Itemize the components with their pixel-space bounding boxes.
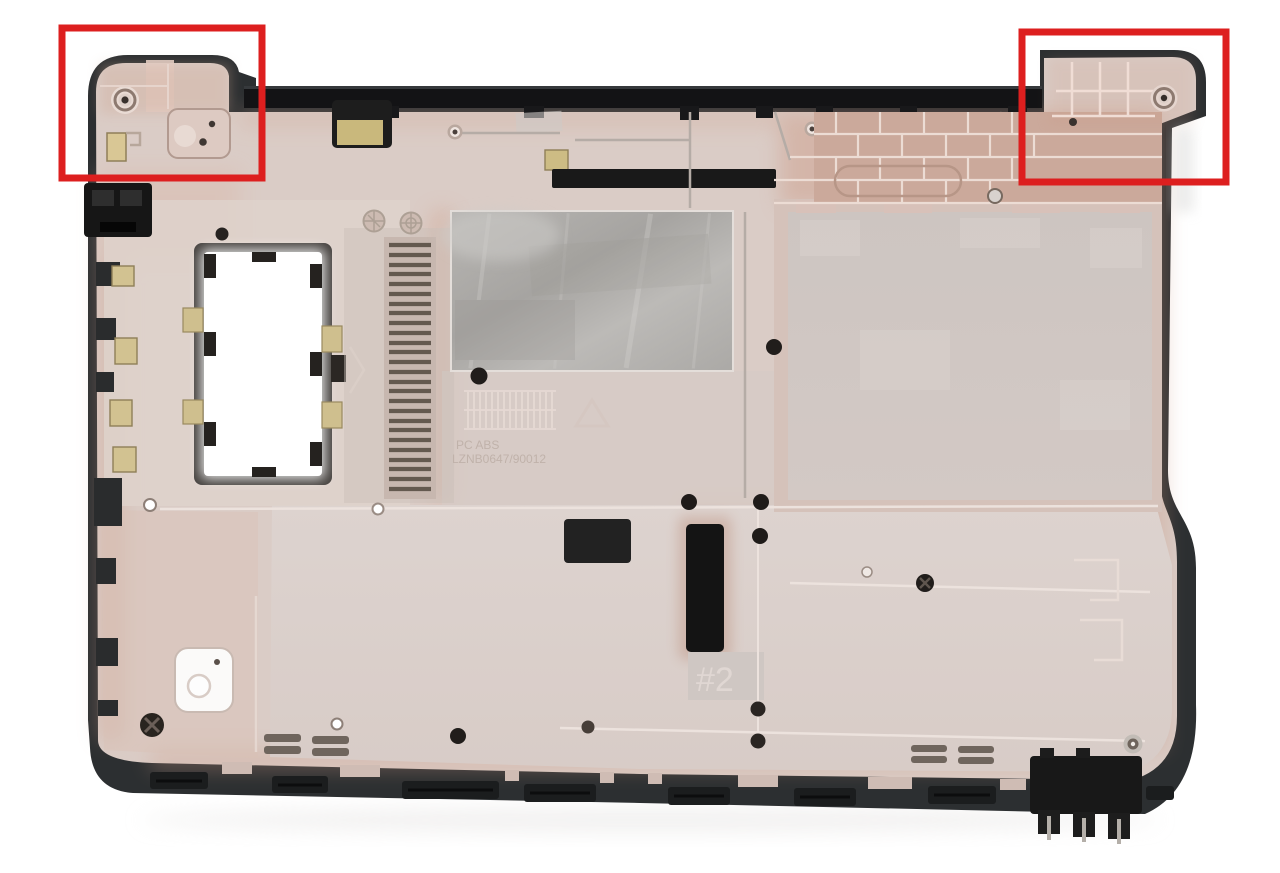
svg-text:#2: #2	[696, 661, 734, 699]
svg-text:LZNB0647/90012: LZNB0647/90012	[452, 452, 546, 466]
svg-text:PC ABS: PC ABS	[456, 438, 499, 452]
